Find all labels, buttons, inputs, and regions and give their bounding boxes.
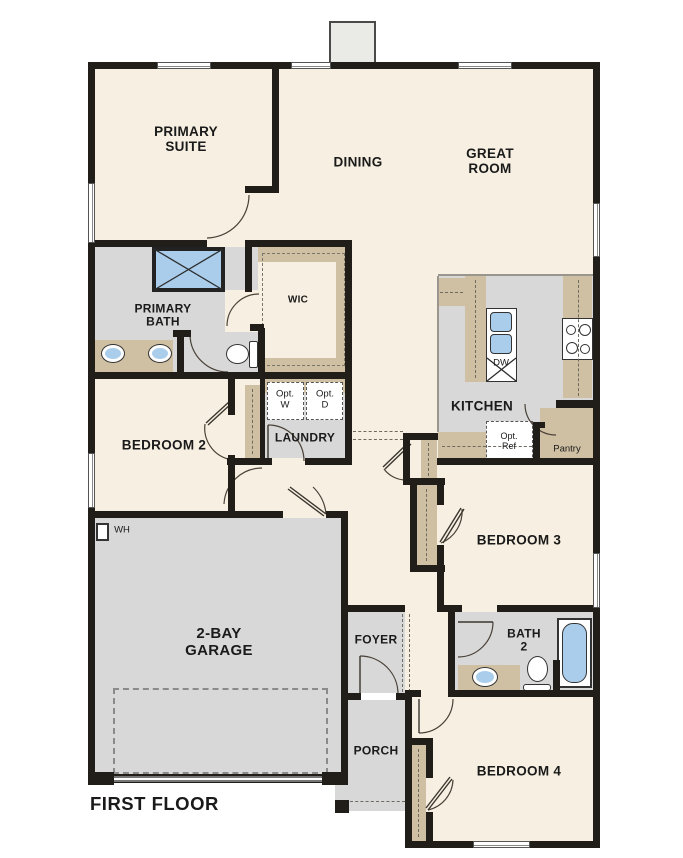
- room-label-great-room: GREAT ROOM: [466, 146, 514, 176]
- burner-3: [566, 342, 578, 354]
- bed4-closet-line: [418, 749, 419, 837]
- wall: [426, 812, 433, 841]
- kitchen-edge-left: [437, 276, 439, 432]
- hall-opening-line-2: [353, 439, 403, 440]
- fixture-label-opt-refrigerator: Opt. Ref: [500, 431, 517, 451]
- sink-basin: [152, 348, 168, 359]
- topleft-counter-line: [440, 292, 463, 293]
- wall: [412, 738, 433, 745]
- floor-title: FIRST FLOOR: [90, 793, 219, 815]
- room-label-bedroom-3: BEDROOM 3: [477, 532, 561, 547]
- room-label-pantry: Pantry: [553, 445, 580, 456]
- fixture-label-water-heater: WH: [114, 526, 130, 537]
- window: [593, 203, 600, 257]
- wall: [177, 337, 184, 372]
- room-label-kitchen: KITCHEN: [451, 398, 513, 413]
- tub-basin: [562, 623, 587, 683]
- wall: [403, 433, 410, 480]
- primary-toilet-tank: [249, 341, 258, 368]
- floor-plan: PRIMARY SUITE DINING GREAT ROOM PRIMARY …: [0, 0, 683, 858]
- fixture-label-dishwasher: DW: [493, 359, 509, 370]
- burner-4: [580, 344, 590, 354]
- wall: [245, 240, 352, 247]
- right-counter-line: [578, 280, 579, 396]
- bath2-toilet-bowl: [527, 656, 548, 682]
- wall: [228, 372, 235, 415]
- bath2-sink: [472, 667, 498, 687]
- room-label-wic: WIC: [288, 294, 308, 305]
- wall: [88, 511, 283, 518]
- room-label-bath-2: BATH 2: [507, 628, 541, 655]
- wall: [88, 372, 352, 379]
- wall: [453, 690, 600, 697]
- closet3-upper-floor: [410, 440, 421, 478]
- wall: [403, 433, 438, 440]
- room-label-garage: 2-BAY GARAGE: [185, 626, 253, 660]
- window: [157, 62, 211, 69]
- wall: [305, 458, 352, 465]
- wall: [272, 62, 279, 192]
- wall: [593, 462, 600, 848]
- foyer-floor: [348, 612, 405, 693]
- wall: [448, 612, 455, 697]
- room-label-primary-suite: PRIMARY SUITE: [154, 124, 218, 154]
- wall: [533, 422, 545, 428]
- porch-edge-line: [350, 801, 405, 802]
- hall-opening-line-1: [353, 431, 403, 432]
- island-cabinet-line: [475, 280, 476, 378]
- room-label-foyer: FOYER: [355, 633, 398, 646]
- wall: [533, 422, 540, 462]
- wall: [245, 186, 279, 193]
- closet3-upper-line: [428, 443, 429, 476]
- fixture-label-opt-washer: Opt. W: [276, 389, 294, 410]
- window: [473, 841, 530, 848]
- wall: [410, 485, 417, 568]
- closet3-upper-shelf: [421, 440, 437, 478]
- bed4-closet-shelf: [412, 745, 426, 841]
- wall: [335, 800, 349, 813]
- room-label-bedroom-4: BEDROOM 4: [477, 763, 561, 778]
- wall: [403, 478, 445, 485]
- room-label-dining: DINING: [333, 154, 382, 169]
- wall: [405, 690, 412, 848]
- window: [458, 62, 512, 69]
- fireplace-bump: [329, 21, 376, 66]
- bottom-counter-line: [442, 446, 532, 447]
- window: [88, 453, 95, 508]
- shower: [152, 247, 225, 292]
- wall: [497, 605, 600, 612]
- wall: [260, 372, 265, 458]
- wall: [326, 511, 348, 518]
- closet3-lower-line: [426, 489, 427, 561]
- wall: [556, 400, 600, 408]
- wall: [437, 458, 600, 465]
- foyer-opening-line-1: [402, 614, 403, 692]
- primary-sink-left: [101, 344, 125, 363]
- wall: [173, 330, 191, 337]
- wall: [440, 605, 462, 612]
- hall-closet-line: [252, 389, 253, 454]
- window: [88, 183, 95, 243]
- sink-basin: [476, 671, 494, 683]
- kitchen-edge-top: [438, 274, 593, 276]
- foyer-opening-line-2: [409, 614, 410, 692]
- window: [291, 62, 331, 69]
- wall: [341, 518, 348, 783]
- burner-2: [579, 324, 591, 336]
- wall: [228, 455, 235, 518]
- room-label-porch: PORCH: [354, 744, 399, 757]
- hall-closet-floor: [235, 385, 245, 458]
- room-label-primary-bath: PRIMARY BATH: [135, 303, 192, 330]
- wall: [88, 772, 114, 785]
- wall: [245, 247, 252, 292]
- wic-shelf-line: [262, 253, 345, 366]
- window: [593, 553, 600, 608]
- wall: [341, 693, 361, 700]
- primary-toilet-bowl: [226, 344, 249, 364]
- wall: [258, 328, 265, 372]
- wall: [88, 518, 95, 781]
- sink-basin: [105, 348, 121, 359]
- wall: [88, 240, 207, 247]
- wall: [437, 485, 444, 505]
- room-label-bedroom-2: BEDROOM 2: [122, 437, 206, 452]
- wall: [426, 745, 433, 778]
- primary-sink-right: [148, 344, 172, 363]
- wall: [88, 62, 95, 518]
- water-heater-box: [96, 523, 109, 541]
- garage-parking-area: [113, 688, 328, 774]
- wall: [348, 605, 405, 612]
- room-label-laundry: LAUNDRY: [275, 431, 335, 444]
- garage-door: [114, 776, 322, 782]
- wall: [345, 240, 352, 465]
- burner-1: [566, 325, 576, 335]
- wall: [412, 690, 421, 697]
- fixture-label-opt-dryer: Opt. D: [316, 389, 334, 410]
- closet3-lower-shelf: [417, 485, 437, 565]
- kitchen-sink-basin-1: [490, 312, 512, 332]
- kitchen-sink-basin-2: [490, 334, 512, 354]
